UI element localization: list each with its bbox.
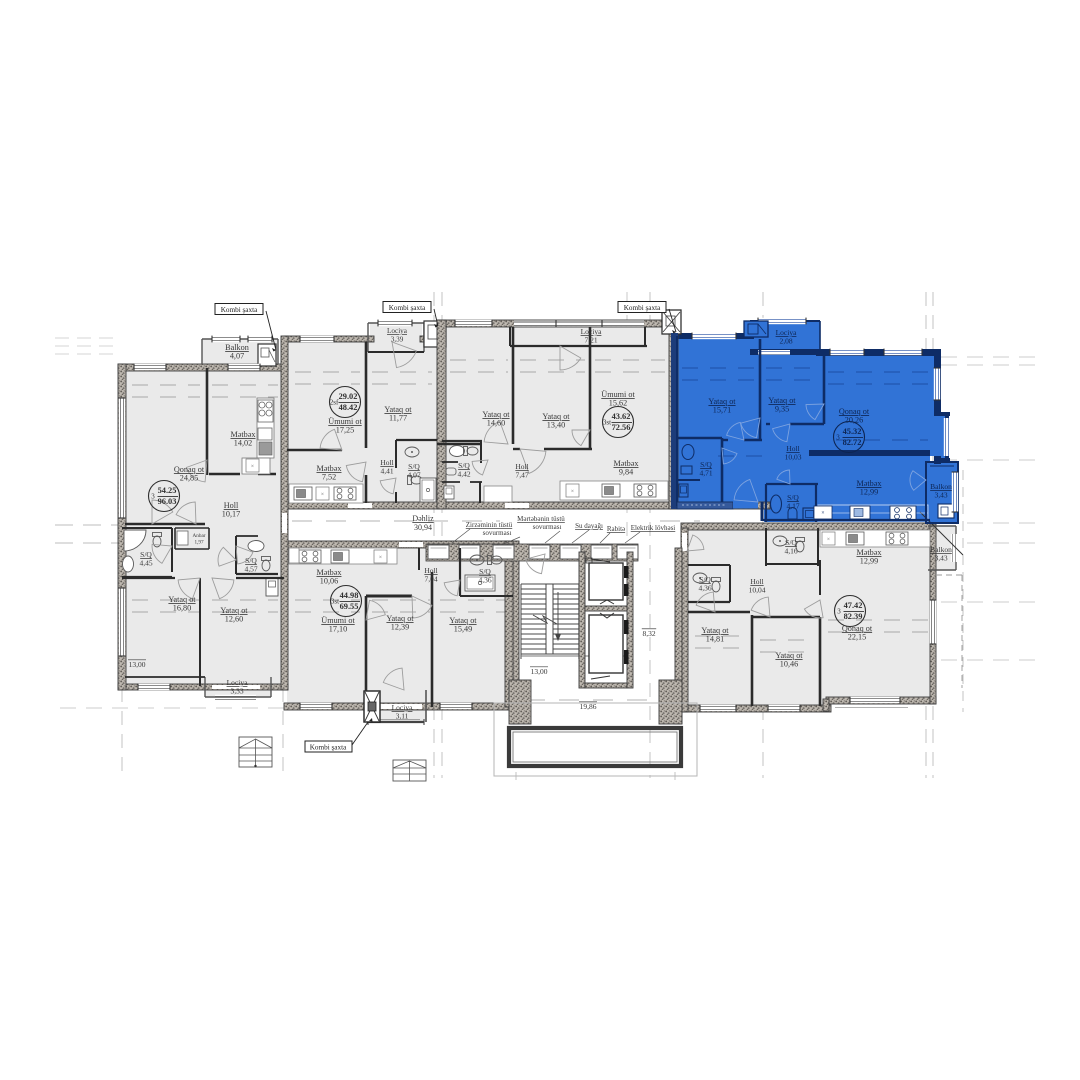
svg-text:Rabitə: Rabitə: [607, 525, 625, 533]
svg-text:10,17: 10,17: [222, 510, 240, 519]
svg-text:24,85: 24,85: [180, 474, 198, 483]
svg-text:4,41: 4,41: [380, 467, 393, 476]
svg-text:15,71: 15,71: [713, 406, 731, 415]
svg-text:×: ×: [321, 492, 324, 498]
svg-text:15,49: 15,49: [454, 625, 472, 634]
svg-text:3: 3: [836, 434, 840, 442]
svg-text:2sf: 2sf: [330, 399, 339, 407]
svg-text:30,94: 30,94: [414, 523, 432, 532]
svg-text:3: 3: [837, 608, 841, 616]
svg-text:4,36: 4,36: [698, 584, 711, 593]
svg-text:Kombi şaxta: Kombi şaxta: [221, 306, 258, 314]
svg-text:12,99: 12,99: [860, 557, 878, 566]
svg-text:4,17: 4,17: [786, 502, 799, 511]
svg-text:54.25: 54.25: [158, 486, 177, 495]
svg-text:17,10: 17,10: [329, 625, 347, 634]
svg-text:10,06: 10,06: [320, 577, 338, 586]
svg-text:12,39: 12,39: [391, 623, 409, 632]
svg-text:3st: 3st: [603, 419, 611, 427]
svg-text:7,52: 7,52: [322, 473, 336, 482]
svg-text:12,60: 12,60: [225, 615, 243, 624]
svg-text:4,16: 4,16: [784, 547, 797, 556]
svg-text:13,00: 13,00: [129, 660, 146, 669]
svg-text:13,00: 13,00: [531, 667, 548, 676]
svg-text:2,08: 2,08: [779, 337, 792, 346]
svg-text:7,04: 7,04: [424, 575, 437, 584]
svg-text:4,42: 4,42: [457, 470, 470, 479]
svg-text:13,40: 13,40: [547, 421, 565, 430]
svg-text:12,99: 12,99: [860, 488, 878, 497]
svg-text:4,36: 4,36: [478, 576, 491, 585]
svg-text:82.39: 82.39: [844, 612, 863, 621]
svg-text:9,84: 9,84: [619, 468, 633, 477]
svg-text:sovurması: sovurması: [533, 523, 562, 531]
svg-text:Mərtəbənin tüstü: Mərtəbənin tüstü: [517, 515, 565, 523]
svg-text:1,97: 1,97: [194, 540, 203, 546]
svg-text:sovurması: sovurması: [483, 529, 512, 537]
svg-text:4,07: 4,07: [230, 352, 244, 361]
svg-text:3,33: 3,33: [230, 687, 243, 696]
svg-text:20,26: 20,26: [845, 416, 863, 425]
svg-text:×: ×: [251, 464, 254, 470]
svg-text:45.32: 45.32: [843, 427, 862, 436]
svg-text:4,57: 4,57: [244, 565, 257, 574]
svg-text:Su dayağı: Su dayağı: [575, 522, 603, 530]
svg-text:Zirzəminin tüstü: Zirzəminin tüstü: [466, 521, 513, 529]
svg-text:×: ×: [827, 537, 830, 543]
svg-text:Anbar: Anbar: [193, 533, 206, 539]
svg-text:82.72: 82.72: [843, 438, 862, 447]
svg-text:10,04: 10,04: [749, 586, 766, 595]
svg-text:8,32: 8,32: [642, 629, 655, 638]
svg-text:44.98: 44.98: [340, 591, 359, 600]
svg-text:3,43: 3,43: [934, 554, 947, 563]
svg-text:4,07: 4,07: [407, 471, 420, 480]
svg-text:22,15: 22,15: [848, 633, 866, 642]
svg-text:3,39: 3,39: [391, 336, 404, 344]
svg-text:96.03: 96.03: [158, 497, 177, 506]
svg-text:43.62: 43.62: [612, 412, 631, 421]
svg-text:Kombi şaxta: Kombi şaxta: [389, 304, 426, 312]
svg-text:7,47: 7,47: [515, 471, 528, 480]
svg-text:Lociya: Lociya: [387, 327, 408, 335]
svg-text:11,77: 11,77: [389, 414, 407, 423]
svg-text:Kombi şaxta: Kombi şaxta: [624, 304, 661, 312]
svg-text:14,81: 14,81: [706, 635, 724, 644]
svg-text:Dəhliz: Dəhliz: [412, 514, 434, 523]
svg-text:3,43: 3,43: [934, 491, 947, 500]
svg-text:Elektrik lövhəsi: Elektrik lövhəsi: [631, 524, 676, 532]
svg-text:×: ×: [571, 489, 574, 495]
svg-text:48.42: 48.42: [339, 403, 358, 412]
svg-text:69.55: 69.55: [340, 602, 359, 611]
svg-text:14,02: 14,02: [234, 439, 252, 448]
svg-text:72.56: 72.56: [612, 423, 631, 432]
svg-text:×: ×: [379, 555, 382, 561]
svg-text:7,21: 7,21: [584, 336, 597, 345]
svg-text:3st: 3st: [331, 598, 339, 606]
svg-text:14,60: 14,60: [487, 419, 505, 428]
svg-text:3,11: 3,11: [396, 712, 409, 721]
svg-text:47.42: 47.42: [844, 601, 863, 610]
svg-text:29.02: 29.02: [339, 392, 358, 401]
svg-text:9,35: 9,35: [775, 405, 789, 414]
svg-text:3: 3: [151, 493, 155, 501]
svg-text:17,25: 17,25: [336, 426, 354, 435]
svg-text:Kombi şaxta: Kombi şaxta: [310, 744, 347, 752]
svg-text:10,03: 10,03: [785, 453, 802, 462]
svg-text:16,80: 16,80: [173, 604, 191, 613]
svg-text:10,46: 10,46: [780, 660, 798, 669]
svg-text:4,45: 4,45: [139, 559, 152, 568]
svg-text:4,71: 4,71: [699, 469, 712, 478]
svg-text:×: ×: [821, 511, 824, 517]
